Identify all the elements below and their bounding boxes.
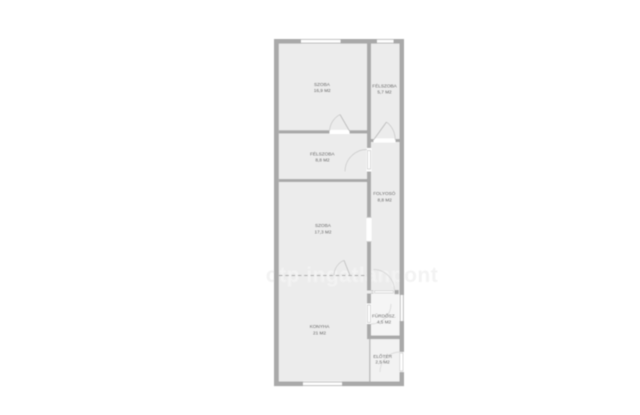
svg-text:2,5 M2: 2,5 M2 (375, 360, 390, 365)
svg-text:4,5 M2: 4,5 M2 (377, 319, 392, 324)
svg-text:KONYHA: KONYHA (310, 324, 331, 329)
svg-text:FÉLSZOBA: FÉLSZOBA (372, 83, 397, 89)
svg-text:5,7 M2: 5,7 M2 (377, 89, 392, 94)
svg-text:21 M2: 21 M2 (313, 331, 326, 336)
svg-text:ELŐTÉR: ELŐTÉR (373, 353, 392, 359)
svg-text:8,8 M2: 8,8 M2 (315, 158, 330, 163)
svg-text:SZOBA: SZOBA (315, 223, 332, 228)
svg-text:FOLYOSÓ: FOLYOSÓ (373, 190, 396, 196)
svg-text:FÜRDŐSZ.: FÜRDŐSZ. (372, 312, 396, 318)
svg-text:SZOBA: SZOBA (314, 82, 331, 87)
svg-text:FÉLSZOBA: FÉLSZOBA (310, 151, 335, 157)
svg-text:8,8 M2: 8,8 M2 (378, 198, 393, 203)
svg-text:16,9 M2: 16,9 M2 (314, 88, 331, 93)
svg-text:17,3 M2: 17,3 M2 (315, 229, 332, 234)
